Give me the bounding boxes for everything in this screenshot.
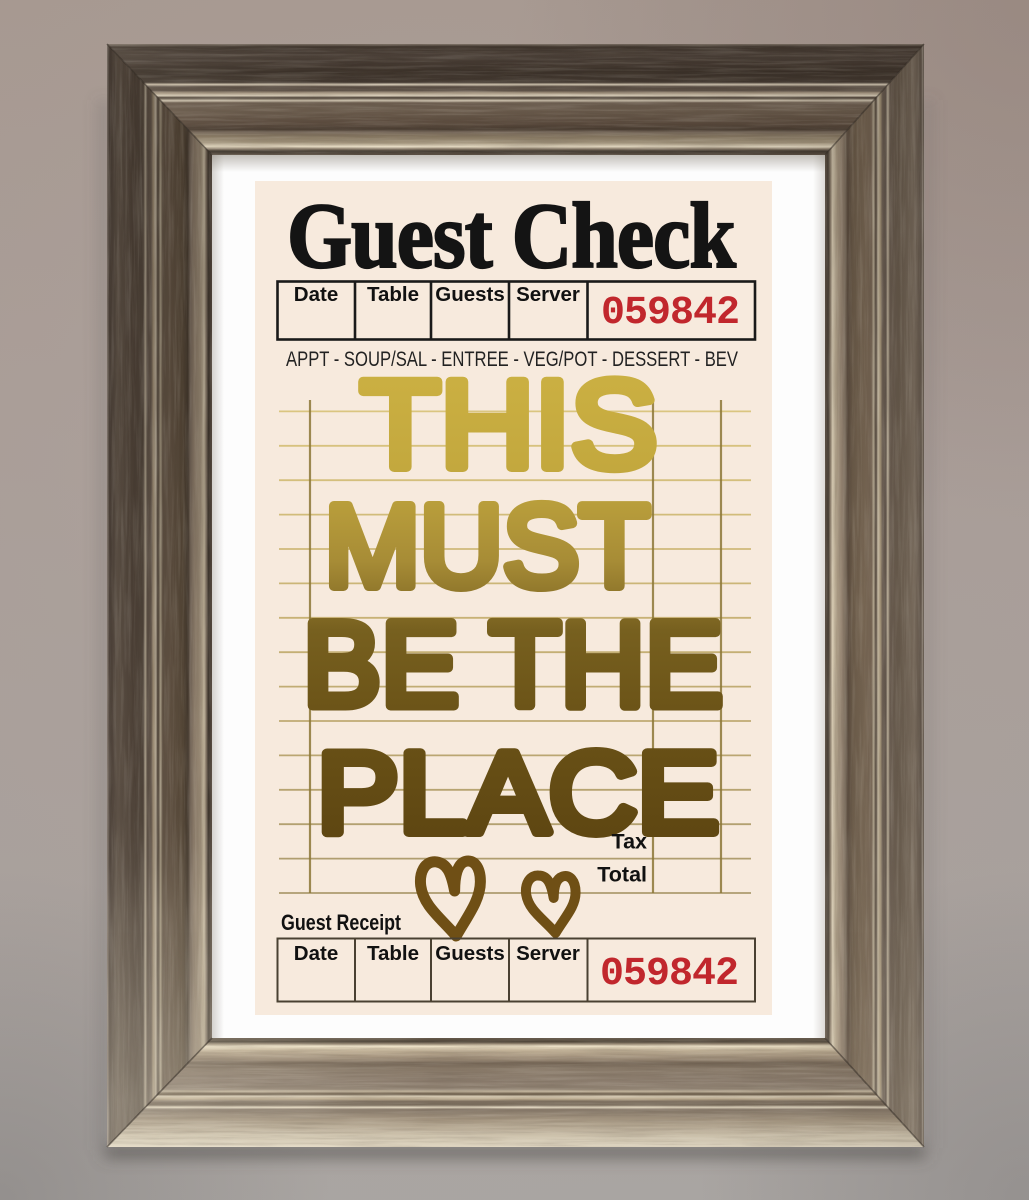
svg-text:Date: Date — [294, 942, 338, 965]
svg-text:MUST: MUST — [325, 481, 650, 611]
svg-text:Tax: Tax — [612, 830, 647, 854]
svg-text:Server: Server — [516, 942, 580, 965]
svg-text:059842: 059842 — [600, 952, 738, 997]
svg-text:Table: Table — [367, 942, 419, 965]
svg-text:Guest Check: Guest Check — [287, 185, 737, 288]
svg-text:Total: Total — [597, 863, 647, 887]
svg-text:BE THE: BE THE — [303, 599, 723, 732]
svg-text:Guests: Guests — [435, 283, 505, 306]
svg-text:Date: Date — [294, 283, 338, 306]
svg-text:PLACE: PLACE — [317, 729, 719, 857]
svg-text:Guests: Guests — [435, 942, 505, 965]
svg-text:THIS: THIS — [361, 356, 658, 494]
svg-text:059842: 059842 — [601, 291, 739, 336]
svg-text:Server: Server — [516, 283, 580, 306]
svg-text:Guest Receipt: Guest Receipt — [281, 910, 402, 935]
svg-text:Table: Table — [367, 283, 419, 306]
